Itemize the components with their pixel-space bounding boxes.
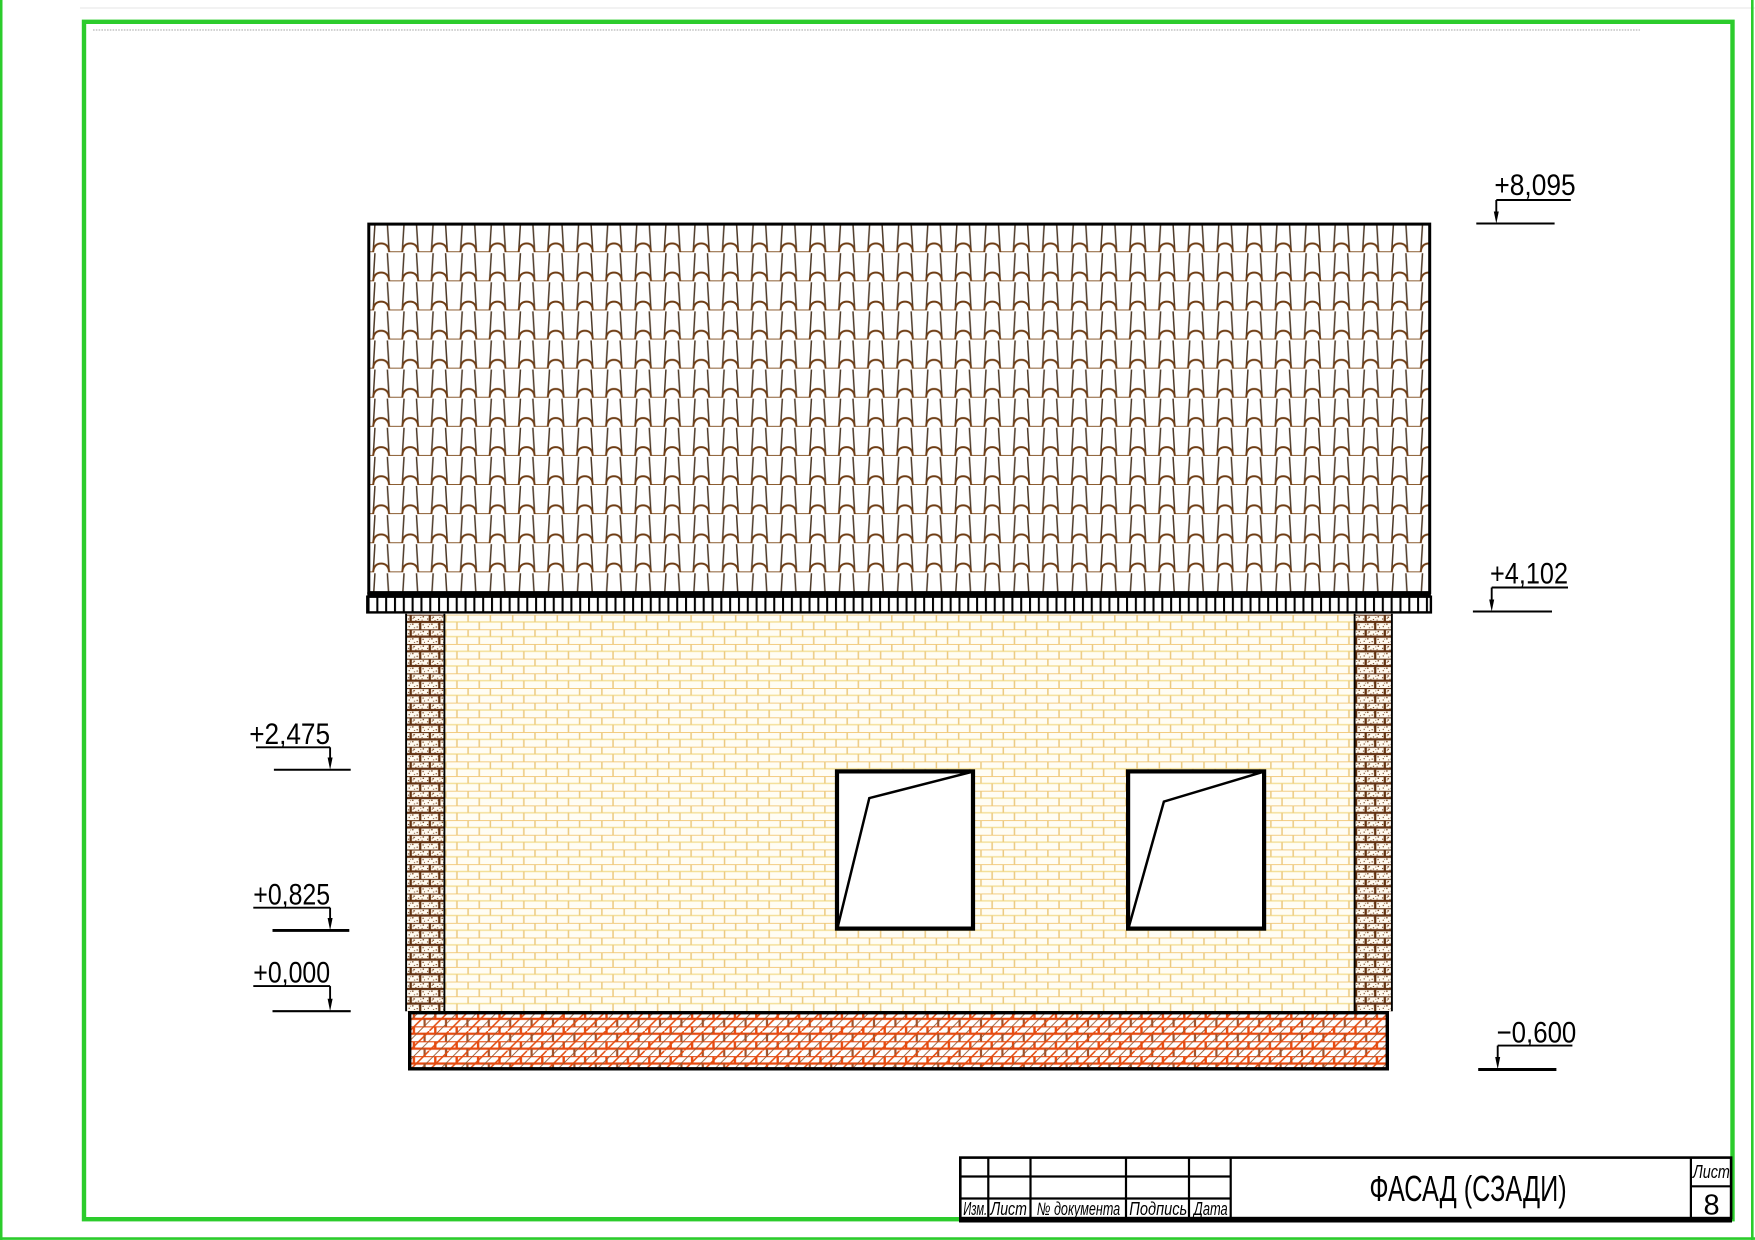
svg-text:−0,600: −0,600 — [1497, 1016, 1577, 1049]
svg-text:Изм.: Изм. — [963, 1199, 987, 1219]
svg-text:+0,825: +0,825 — [253, 878, 330, 911]
svg-text:№ документа: № документа — [1037, 1199, 1120, 1219]
svg-text:+2,475: +2,475 — [249, 718, 330, 751]
svg-text:Подпись: Подпись — [1129, 1199, 1187, 1219]
svg-text:Лист: Лист — [990, 1199, 1027, 1219]
svg-text:+8,095: +8,095 — [1494, 169, 1575, 202]
svg-text:+0,000: +0,000 — [253, 957, 330, 990]
svg-text:+4,102: +4,102 — [1490, 558, 1568, 591]
svg-text:ФАСАД (СЗАДИ): ФАСАД (СЗАДИ) — [1369, 1168, 1566, 1209]
svg-text:Лист: Лист — [1692, 1162, 1730, 1182]
svg-text:8: 8 — [1704, 1190, 1720, 1222]
svg-text:Дата: Дата — [1192, 1199, 1227, 1219]
